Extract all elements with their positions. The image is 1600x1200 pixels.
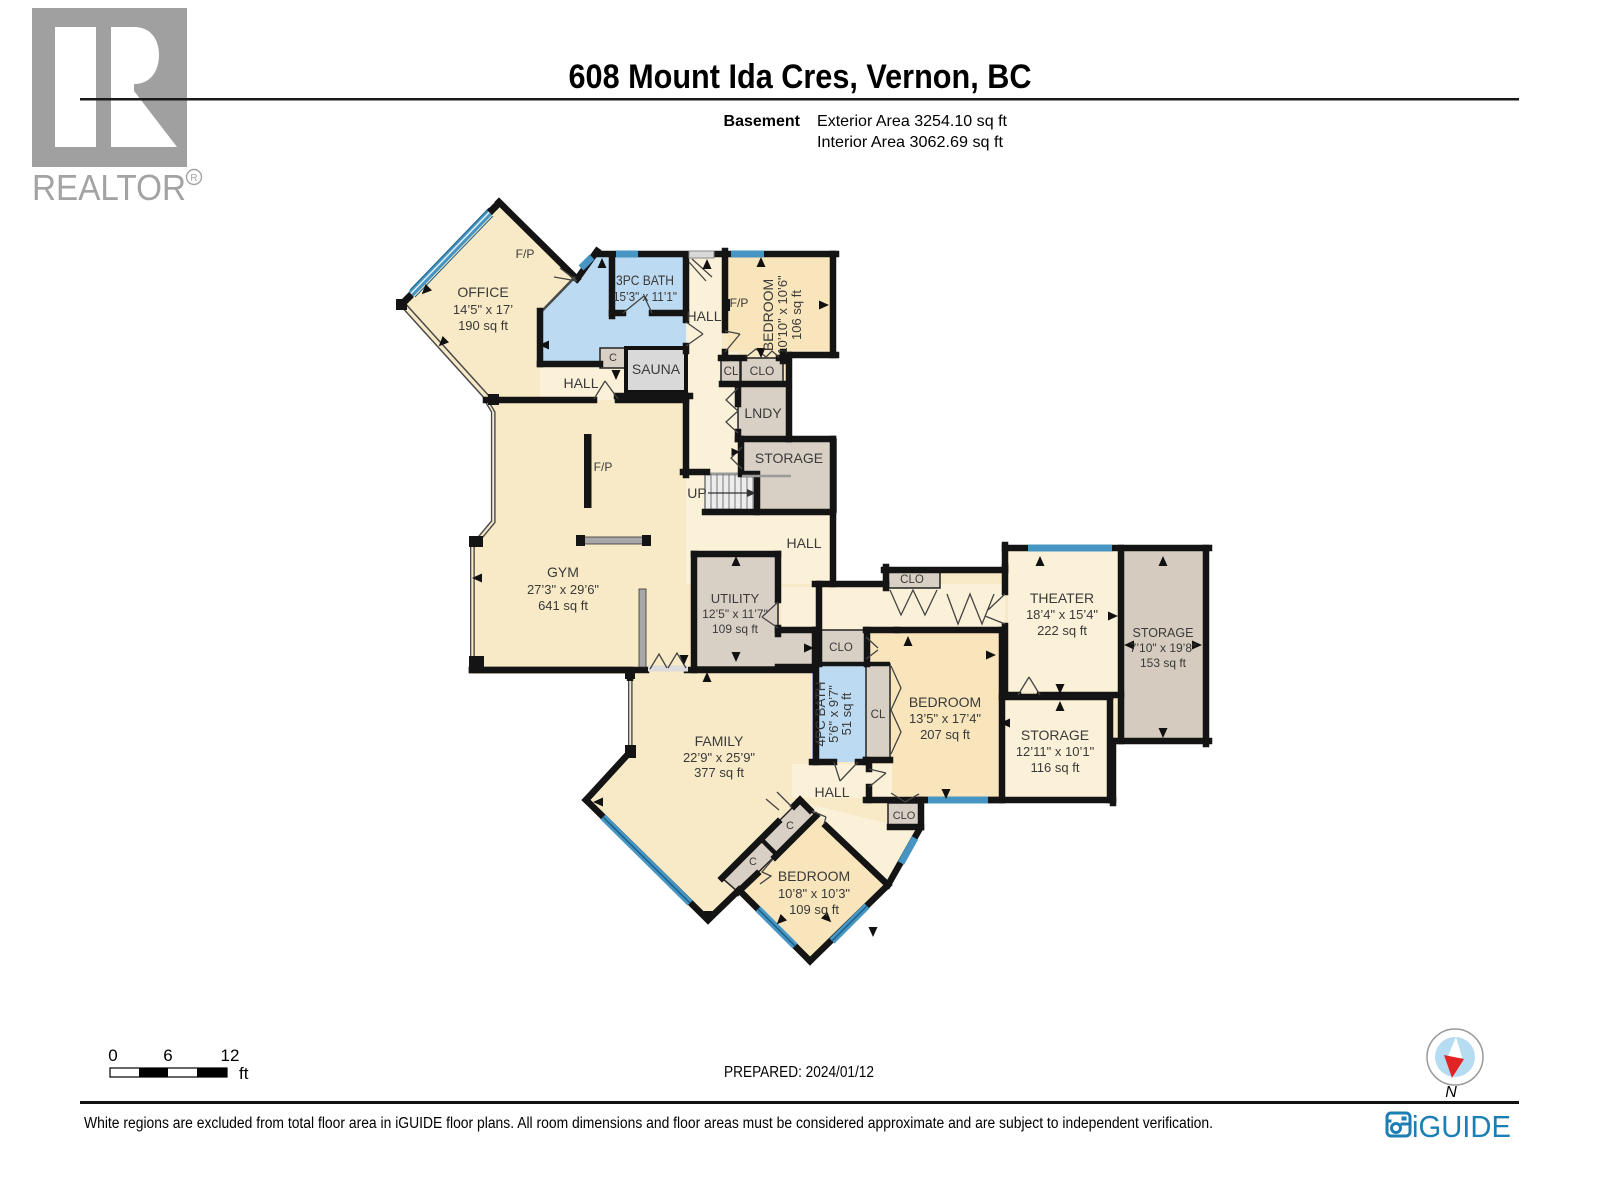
svg-text:ft: ft	[239, 1064, 249, 1083]
svg-text:HALL: HALL	[563, 375, 598, 391]
svg-text:F/P: F/P	[594, 460, 613, 474]
svg-text:REALTOR: REALTOR	[32, 167, 186, 208]
svg-text:153 sq ft: 153 sq ft	[1140, 656, 1187, 670]
svg-text:222 sq ft: 222 sq ft	[1037, 623, 1087, 638]
svg-text:STORAGE: STORAGE	[1133, 626, 1194, 640]
svg-text:C: C	[786, 820, 794, 832]
svg-text:OFFICE: OFFICE	[457, 284, 508, 300]
svg-text:15’3" x 11’1": 15’3" x 11’1"	[613, 289, 677, 304]
svg-text:Exterior Area 3254.10 sq ft: Exterior Area 3254.10 sq ft	[817, 113, 1008, 130]
svg-text:18’4" x 15’4": 18’4" x 15’4"	[1026, 607, 1098, 622]
svg-text:12’5" x 11’7": 12’5" x 11’7"	[702, 607, 768, 621]
svg-text:BEDROOM: BEDROOM	[909, 694, 981, 710]
svg-text:CLO: CLO	[893, 810, 916, 822]
svg-text:10’8" x 10’3": 10’8" x 10’3"	[778, 886, 850, 901]
svg-text:10’10" x 10’6": 10’10" x 10’6"	[775, 275, 790, 355]
svg-text:27’3" x 29’6": 27’3" x 29’6"	[527, 582, 599, 597]
svg-text:51 sq ft: 51 sq ft	[839, 692, 854, 735]
svg-text:C: C	[609, 352, 617, 364]
svg-text:116 sq ft: 116 sq ft	[1031, 760, 1080, 775]
svg-text:Interior Area 3062.69 sq ft: Interior Area 3062.69 sq ft	[817, 134, 1004, 151]
svg-text:3PC BATH: 3PC BATH	[616, 272, 674, 288]
svg-text:STORAGE: STORAGE	[1021, 727, 1089, 743]
svg-text:BEDROOM: BEDROOM	[778, 868, 850, 884]
svg-text:190 sq ft: 190 sq ft	[458, 318, 508, 333]
svg-text:6: 6	[163, 1046, 172, 1065]
svg-text:109 sq ft: 109 sq ft	[712, 622, 759, 636]
svg-text:PREPARED: 2024/01/12: PREPARED: 2024/01/12	[724, 1064, 874, 1081]
svg-text:HALL: HALL	[814, 784, 849, 800]
svg-text:HALL: HALL	[786, 535, 821, 551]
svg-text:F/P: F/P	[730, 296, 749, 310]
svg-text:HALL: HALL	[686, 308, 721, 324]
svg-text:White regions are excluded fro: White regions are excluded from total fl…	[84, 1115, 1213, 1132]
svg-text:C: C	[749, 856, 757, 868]
svg-text:UP: UP	[687, 485, 706, 501]
svg-text:12: 12	[221, 1046, 240, 1065]
svg-text:12’11" x 10’1": 12’11" x 10’1"	[1016, 744, 1095, 759]
svg-text:377 sq ft: 377 sq ft	[694, 765, 744, 780]
svg-text:N: N	[1445, 1084, 1457, 1101]
svg-text:BEDROOM: BEDROOM	[760, 279, 776, 351]
svg-text:LNDY: LNDY	[744, 405, 782, 421]
svg-text:207 sq ft: 207 sq ft	[920, 727, 970, 742]
svg-text:F/P: F/P	[516, 247, 535, 261]
svg-text:GYM: GYM	[547, 564, 579, 580]
svg-text:Basement: Basement	[724, 113, 801, 130]
svg-text:CLO: CLO	[900, 574, 924, 586]
svg-text:608 Mount Ida Cres, Vernon, BC: 608 Mount Ida Cres, Vernon, BC	[569, 58, 1032, 96]
svg-text:CLO: CLO	[829, 642, 853, 654]
svg-text:iGUIDE: iGUIDE	[1412, 1109, 1511, 1144]
svg-text:CLO: CLO	[750, 364, 775, 378]
svg-text:109 sq ft: 109 sq ft	[789, 902, 839, 917]
svg-text:641 sq ft: 641 sq ft	[538, 598, 588, 613]
svg-text:0: 0	[108, 1046, 117, 1065]
svg-text:R: R	[190, 173, 197, 184]
svg-text:CL: CL	[871, 709, 886, 721]
svg-text:SAUNA: SAUNA	[632, 361, 681, 377]
svg-text:7’10" x 19’8": 7’10" x 19’8"	[1130, 641, 1197, 655]
svg-text:CL: CL	[724, 366, 739, 378]
svg-text:UTILITY: UTILITY	[711, 591, 760, 606]
svg-text:STORAGE: STORAGE	[755, 450, 823, 466]
svg-text:FAMILY: FAMILY	[695, 733, 744, 749]
svg-text:22’9" x 25’9": 22’9" x 25’9"	[683, 750, 755, 765]
svg-text:13’5" x 17’4": 13’5" x 17’4"	[909, 711, 981, 726]
svg-text:14’5" x 17’: 14’5" x 17’	[453, 302, 513, 317]
svg-text:THEATER: THEATER	[1030, 590, 1094, 606]
svg-text:106 sq ft: 106 sq ft	[789, 290, 804, 340]
